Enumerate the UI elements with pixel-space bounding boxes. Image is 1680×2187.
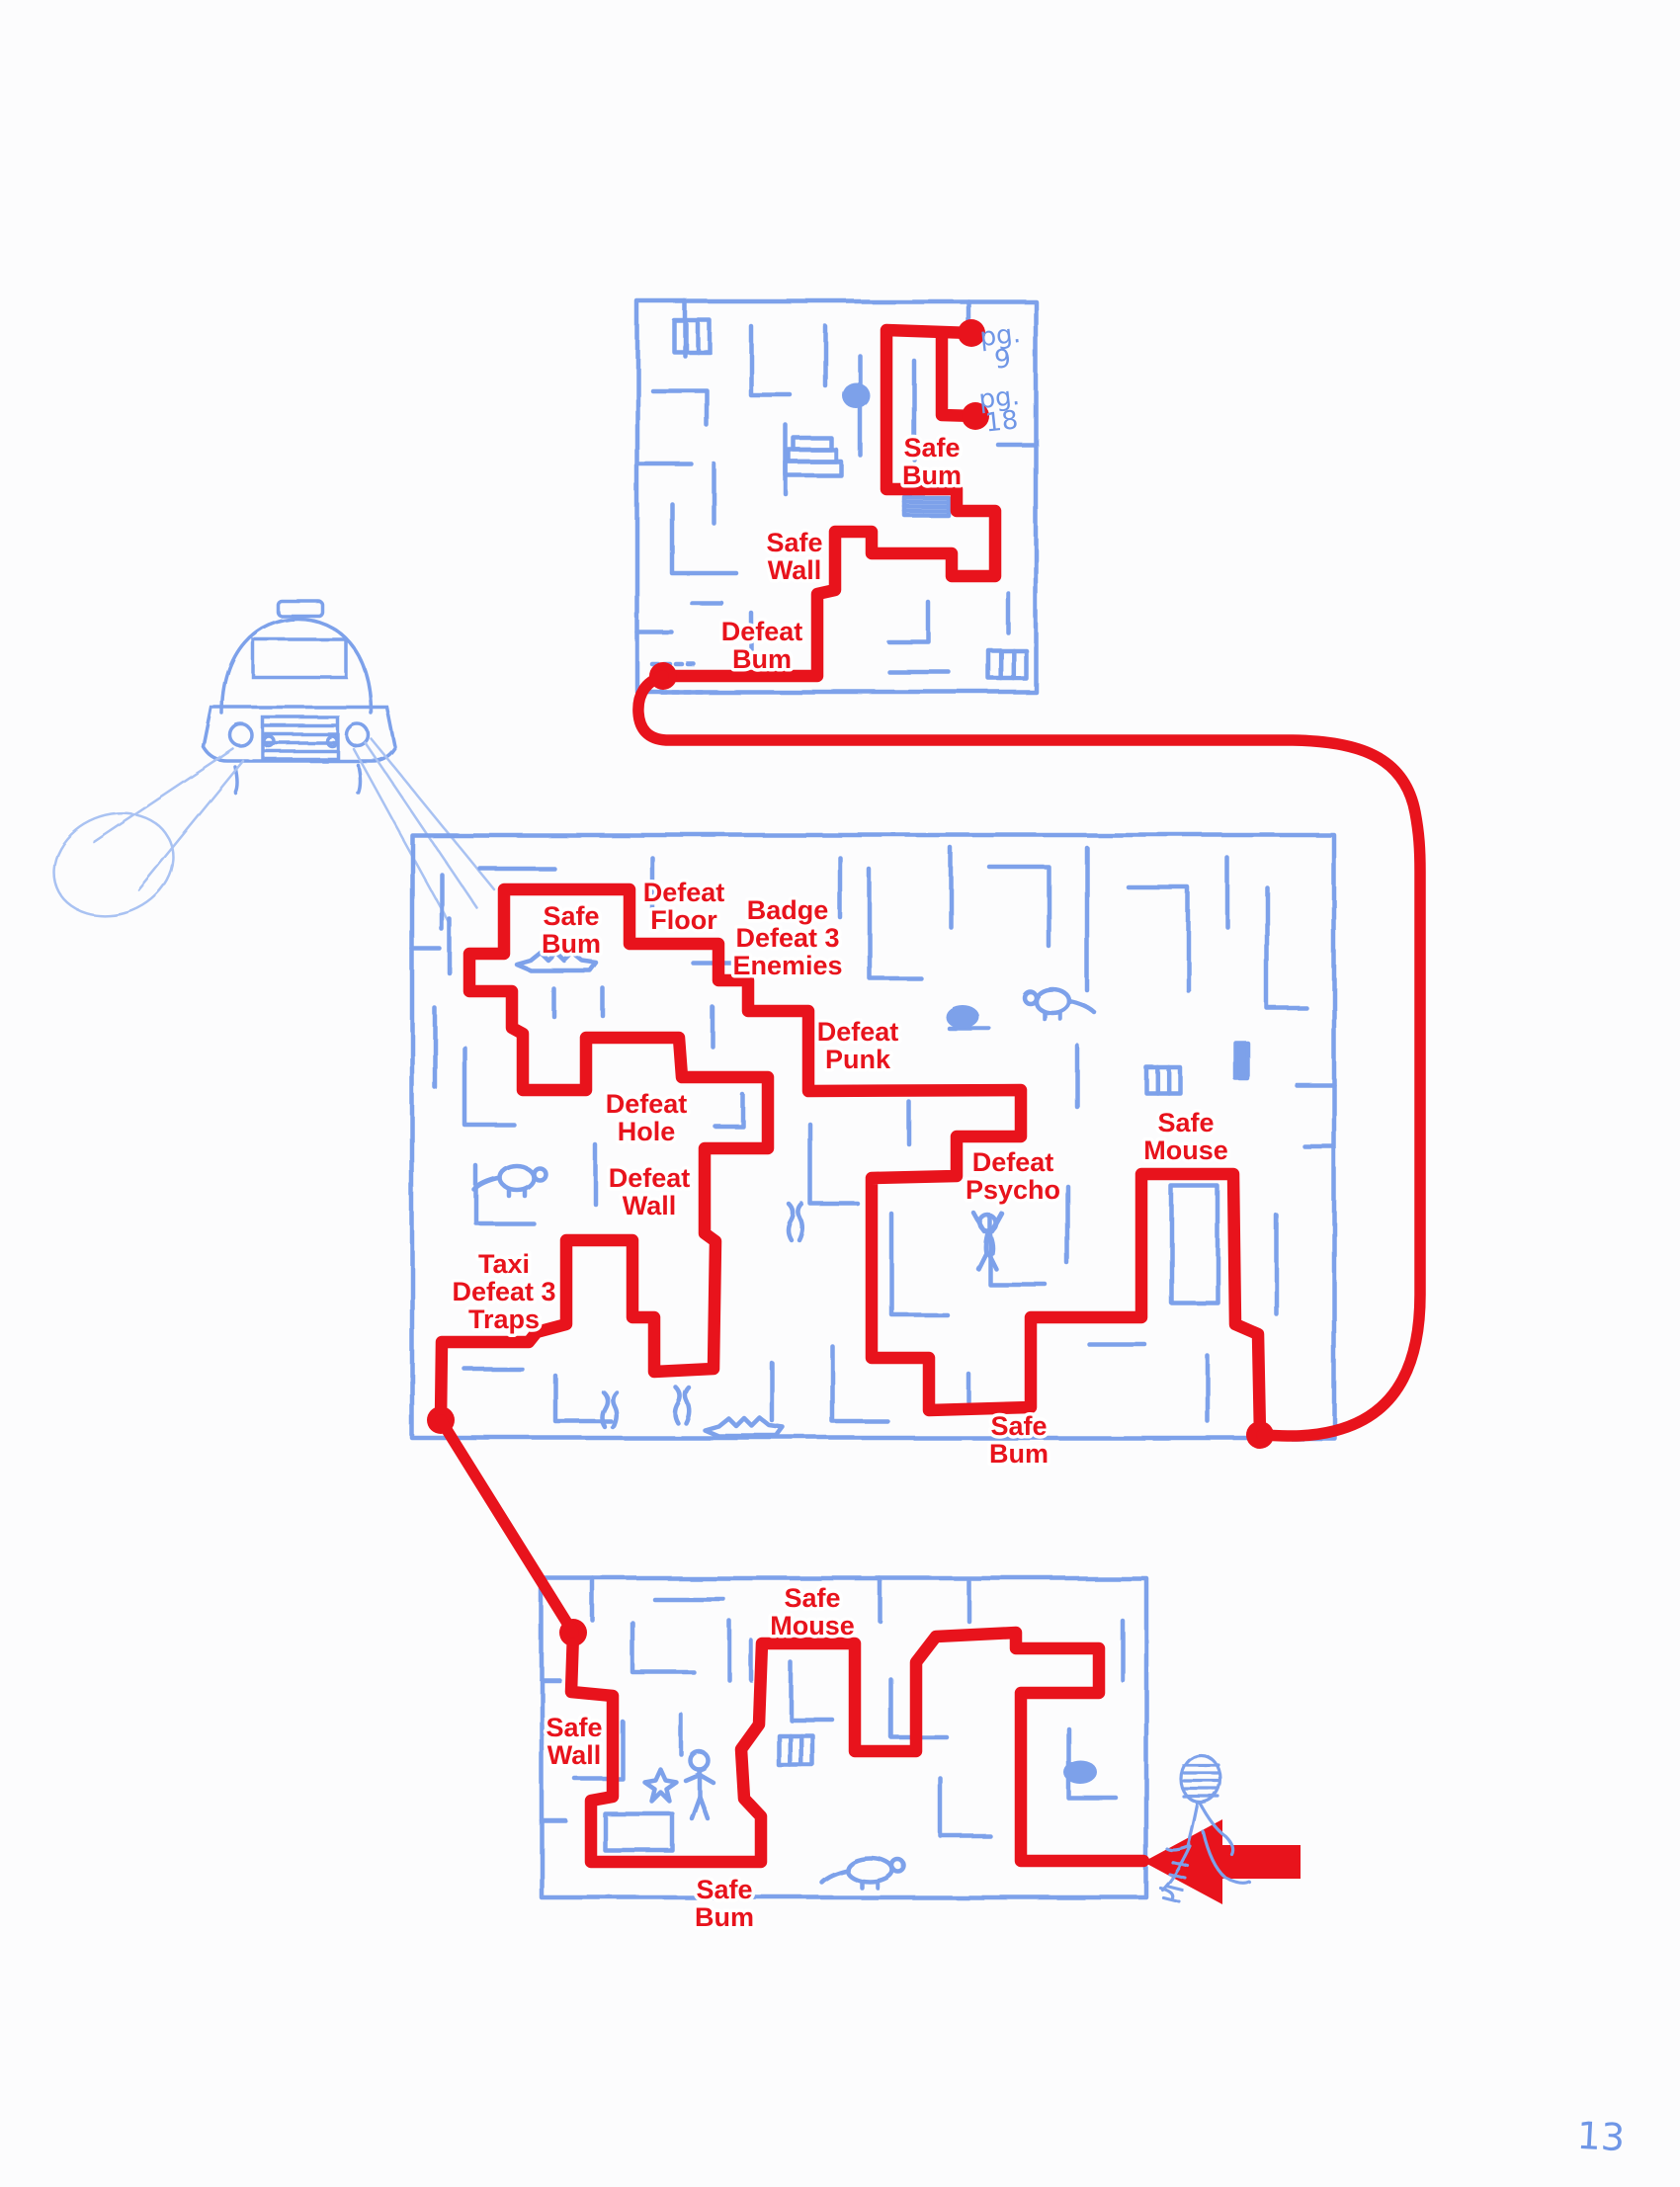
armadillo-icon [821, 1858, 904, 1888]
page-ref-note: pg.18 [977, 381, 1024, 439]
route-label: TaxiDefeat 3Traps [452, 1249, 555, 1334]
blob-icon [1064, 1761, 1098, 1785]
route-label: SafeBum [695, 1875, 754, 1932]
rat-icon [474, 1166, 546, 1196]
route-label: SafeWall [546, 1713, 602, 1770]
route-label: DefeatHole [606, 1089, 688, 1146]
route-label: DefeatBum [721, 617, 803, 674]
route-label: DefeatPunk [817, 1017, 899, 1074]
page-ref-note: pg.9 [978, 319, 1025, 377]
middle-maze: SafeBumDefeatFloorBadgeDefeat 3EnemiesDe… [412, 835, 1334, 1469]
page-number: 13 [1560, 2113, 1641, 2160]
maze-walkthrough-drawing: pg.9pg.18SafeBumSafeWallDefeatBumSafeBum… [0, 0, 1680, 2187]
blob-icon [945, 1004, 978, 1028]
grate-icon [904, 497, 948, 515]
person-figure [686, 1752, 714, 1818]
route-label: DefeatPsycho [966, 1147, 1060, 1205]
bottom-maze-route [571, 1633, 1143, 1862]
bottom-maze: SafeMouseSafeWallSafeBum [542, 1578, 1146, 1932]
route-label: DefeatFloor [643, 878, 725, 935]
route-label: SafeBum [542, 901, 601, 959]
box-stack-icon [786, 438, 841, 475]
grate-icon [1146, 1067, 1180, 1093]
fire-icon [675, 1388, 689, 1423]
route-label: SafeMouse [1143, 1108, 1228, 1165]
star-icon [644, 1769, 676, 1801]
route-label: SafeBum [902, 433, 962, 490]
grate-icon [779, 1735, 812, 1765]
fire-icon [788, 1204, 801, 1239]
route-label: DefeatWall [609, 1163, 691, 1220]
connector-middle-to-bottom [441, 1420, 573, 1633]
taxi-sketch [39, 601, 494, 934]
apple-icon [842, 382, 870, 408]
window-icon [674, 320, 710, 352]
rat-icon [1024, 989, 1095, 1019]
hatch-icon [988, 650, 1026, 678]
scanned-page: pg.9pg.18SafeBumSafeWallDefeatBumSafeBum… [0, 0, 1680, 2187]
route-label: BadgeDefeat 3Enemies [732, 895, 842, 980]
route-label: SafeBum [989, 1411, 1049, 1469]
door-icon [1235, 1043, 1247, 1078]
route-label: SafeWall [766, 528, 822, 585]
route-label: SafeMouse [770, 1583, 855, 1640]
top-maze: pg.9pg.18SafeBumSafeWallDefeatBum [637, 301, 1036, 692]
